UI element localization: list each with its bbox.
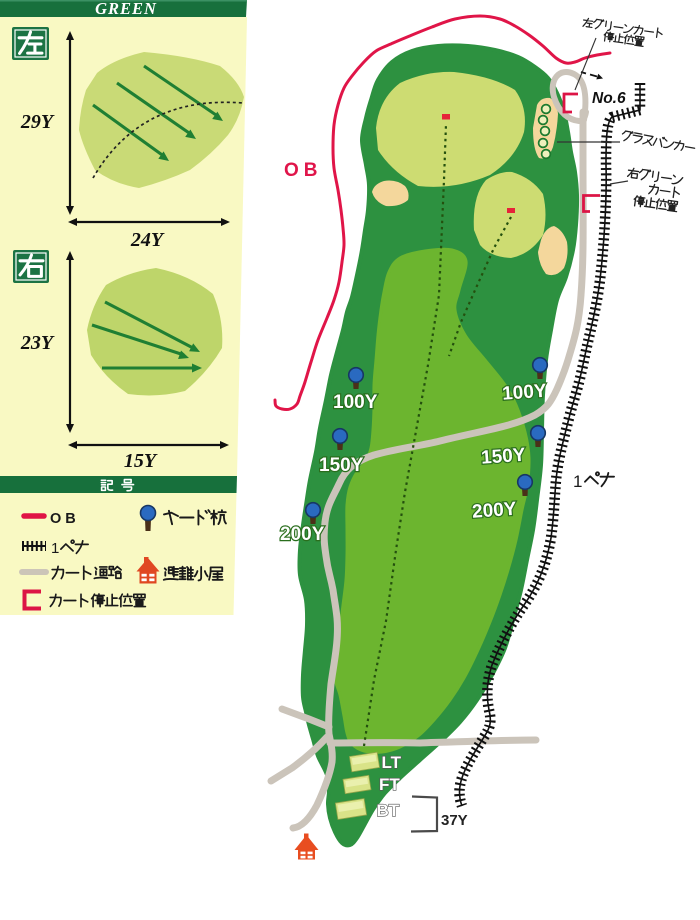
- svg-text:FT: FT: [379, 775, 400, 794]
- svg-text:37Y: 37Y: [441, 812, 468, 829]
- svg-text:OB: OB: [50, 511, 80, 527]
- svg-text:200Y: 200Y: [471, 499, 517, 523]
- svg-text:24Y: 24Y: [130, 229, 165, 251]
- svg-text:1: 1: [51, 540, 59, 557]
- svg-text:OB: OB: [284, 160, 323, 181]
- svg-text:1: 1: [573, 472, 582, 491]
- svg-text:29Y: 29Y: [20, 111, 55, 133]
- svg-text:23Y: 23Y: [20, 332, 55, 354]
- svg-text:150Y: 150Y: [319, 455, 364, 476]
- svg-text:LT: LT: [382, 753, 402, 772]
- svg-text:100Y: 100Y: [502, 381, 548, 405]
- svg-text:BT: BT: [377, 801, 400, 820]
- svg-text:15Y: 15Y: [124, 450, 158, 472]
- svg-text:GREEN: GREEN: [95, 0, 157, 18]
- svg-text:100Y: 100Y: [333, 392, 378, 413]
- svg-text:No.6: No.6: [592, 90, 626, 107]
- svg-text:200Y: 200Y: [280, 524, 325, 545]
- svg-text:150Y: 150Y: [480, 445, 526, 469]
